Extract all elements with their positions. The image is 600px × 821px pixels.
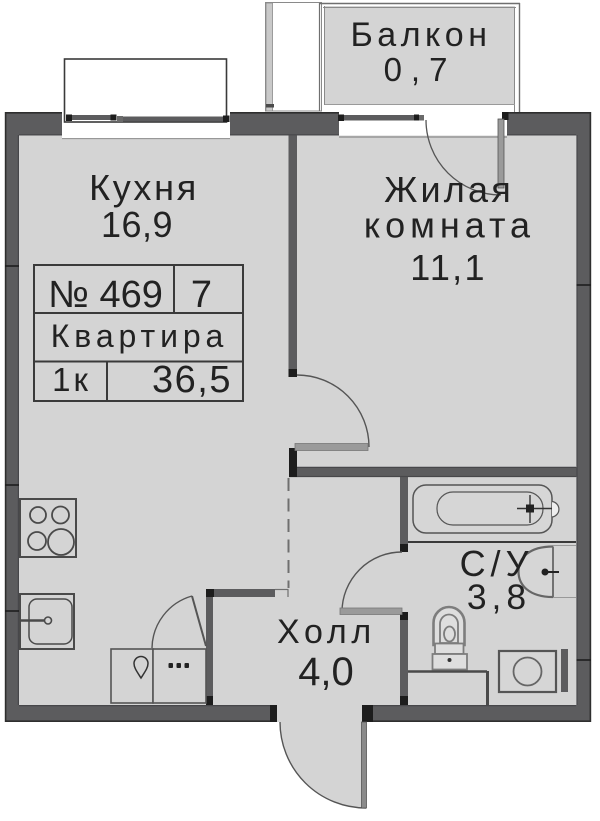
svg-text:1к: 1к — [52, 361, 91, 398]
svg-text:Холл: Холл — [277, 613, 376, 651]
svg-text:36,5: 36,5 — [152, 359, 232, 401]
svg-text:№ 469: № 469 — [48, 274, 163, 316]
svg-text:7: 7 — [191, 274, 212, 316]
svg-text:3,8: 3,8 — [467, 577, 531, 617]
svg-text:16,9: 16,9 — [101, 204, 173, 245]
svg-text:Квартира: Квартира — [51, 318, 229, 354]
svg-text:0,7: 0,7 — [384, 51, 457, 88]
svg-text:Балкон: Балкон — [350, 16, 491, 54]
svg-text:комната: комната — [364, 205, 535, 246]
svg-text:Кухня: Кухня — [89, 167, 199, 208]
svg-text:4,0: 4,0 — [298, 650, 354, 694]
svg-text:11,1: 11,1 — [410, 247, 487, 288]
